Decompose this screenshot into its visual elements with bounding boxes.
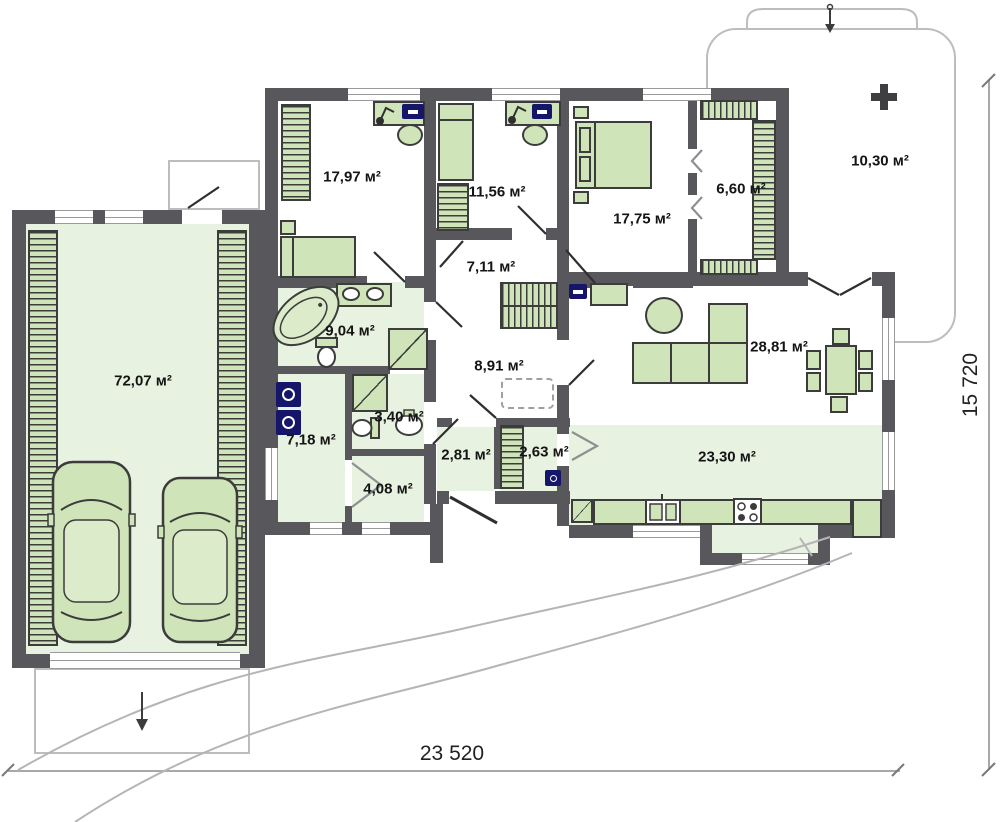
kitchen-counter bbox=[852, 499, 882, 538]
overall-height-dimension: 15 720 bbox=[959, 353, 983, 417]
wardrobe-icon bbox=[700, 259, 758, 275]
kitchen-cabinet bbox=[571, 499, 593, 523]
washbasin-icon bbox=[342, 287, 360, 301]
wall bbox=[872, 272, 895, 286]
window bbox=[105, 210, 143, 224]
wall bbox=[249, 210, 265, 668]
nightstand bbox=[573, 106, 589, 119]
washer-icon bbox=[276, 382, 301, 407]
window bbox=[882, 318, 895, 380]
room-label-bedroom-1: 17,97 м² bbox=[323, 169, 381, 186]
computer-icon bbox=[532, 104, 552, 119]
window bbox=[742, 553, 808, 565]
window bbox=[348, 88, 420, 101]
wall bbox=[265, 522, 437, 535]
chair-icon bbox=[830, 396, 848, 413]
room-label-laundry: 7,18 м² bbox=[286, 432, 335, 449]
dining-table-icon bbox=[825, 345, 857, 395]
tree-icon bbox=[871, 93, 897, 101]
wall bbox=[688, 101, 697, 149]
bed-icon bbox=[438, 103, 474, 181]
room-label-bedroom-2: 11,56 м² bbox=[469, 184, 526, 201]
room-label-garage: 72,07 м² bbox=[114, 373, 172, 390]
dimension-line bbox=[988, 80, 990, 770]
room-label-entry-hall: 2,81 м² bbox=[441, 447, 490, 464]
room-label-bedroom-3: 17,75 м² bbox=[613, 211, 671, 228]
floor-plan: 72,07 м² 17,97 м² 11,56 м² 17,75 м² 6,60… bbox=[0, 0, 1000, 822]
bed-pillow-line bbox=[292, 238, 294, 276]
room-label-hall: 8,91 м² bbox=[474, 358, 523, 375]
attic-hatch-icon bbox=[501, 378, 554, 409]
window bbox=[882, 432, 895, 490]
sofa-seam bbox=[708, 344, 710, 382]
chair-icon bbox=[397, 124, 423, 146]
overall-width-dimension: 23 520 bbox=[420, 742, 484, 766]
room-label-wc: 3,40 м² bbox=[374, 409, 423, 426]
wall bbox=[437, 491, 449, 504]
wardrobe-icon bbox=[700, 100, 758, 120]
nightstand bbox=[573, 191, 589, 204]
wall bbox=[12, 210, 26, 668]
wall bbox=[345, 449, 431, 456]
side-door-opening bbox=[182, 210, 222, 224]
wall bbox=[495, 491, 570, 504]
sofa-icon bbox=[632, 342, 748, 384]
garage-door bbox=[50, 652, 240, 669]
wall bbox=[818, 525, 830, 565]
room-label-corridor: 7,11 м² bbox=[467, 259, 516, 276]
wall bbox=[557, 240, 569, 340]
nightstand bbox=[280, 220, 296, 235]
chair-icon bbox=[832, 328, 850, 345]
wall bbox=[437, 418, 452, 427]
wardrobe-icon bbox=[437, 183, 469, 231]
wardrobe-icon bbox=[281, 104, 311, 201]
sofa-seam bbox=[670, 344, 672, 382]
pillow bbox=[579, 127, 591, 153]
room-label-living-room: 28,81 м² bbox=[750, 339, 808, 356]
wall bbox=[265, 88, 278, 288]
shelving-icon bbox=[28, 230, 58, 646]
wall bbox=[430, 504, 443, 563]
washbasin-icon bbox=[366, 287, 384, 301]
window bbox=[492, 88, 560, 101]
window bbox=[265, 448, 278, 500]
chair-icon bbox=[806, 350, 821, 370]
shower-icon bbox=[352, 374, 388, 412]
wall bbox=[345, 374, 352, 460]
wardrobe-shelf-line bbox=[500, 305, 558, 307]
dimension-line bbox=[8, 770, 900, 772]
tv-icon bbox=[569, 284, 587, 299]
bay-window-floor bbox=[712, 525, 818, 553]
tv-console bbox=[590, 283, 628, 306]
shelving-icon bbox=[217, 230, 247, 646]
coffee-table-icon bbox=[645, 297, 683, 334]
wall bbox=[557, 418, 569, 434]
wall bbox=[424, 240, 436, 302]
room-label-terrace: 10,30 м² bbox=[851, 153, 909, 170]
chair-icon bbox=[858, 350, 873, 370]
wall bbox=[345, 506, 352, 522]
side-canopy-outline bbox=[168, 160, 260, 210]
computer-icon bbox=[402, 104, 424, 119]
window bbox=[310, 522, 342, 535]
bed-pillow-line bbox=[440, 119, 472, 121]
room-label-entry-closet: 2,63 м² bbox=[519, 444, 568, 461]
window bbox=[55, 210, 93, 224]
room-label-kitchen-dining: 23,30 м² bbox=[698, 449, 756, 466]
wall bbox=[546, 228, 569, 240]
room-label-bathroom: 9,04 м² bbox=[325, 323, 374, 340]
canopy-line bbox=[747, 9, 917, 30]
chair-icon bbox=[806, 372, 821, 392]
wall bbox=[424, 88, 436, 240]
shoe-cabinet-icon bbox=[545, 470, 561, 486]
driveway-outline bbox=[34, 668, 250, 754]
window bbox=[362, 522, 390, 535]
kitchen-counter bbox=[593, 499, 852, 525]
pillow bbox=[579, 156, 591, 182]
wall bbox=[688, 173, 697, 195]
chair-icon bbox=[522, 124, 548, 146]
bed-pillow-line bbox=[594, 123, 596, 187]
shower-icon bbox=[388, 328, 428, 370]
wall bbox=[688, 219, 697, 279]
wall bbox=[278, 366, 390, 374]
sofa-icon bbox=[708, 303, 748, 347]
room-label-hallway: 4,08 м² bbox=[363, 481, 412, 498]
window bbox=[633, 525, 700, 538]
wall bbox=[569, 525, 633, 538]
wall bbox=[776, 88, 789, 286]
wall bbox=[557, 385, 569, 418]
room-label-walk-in-closet: 6,60 м² bbox=[716, 181, 765, 198]
garage-floor bbox=[26, 224, 249, 654]
chair-icon bbox=[858, 372, 873, 392]
